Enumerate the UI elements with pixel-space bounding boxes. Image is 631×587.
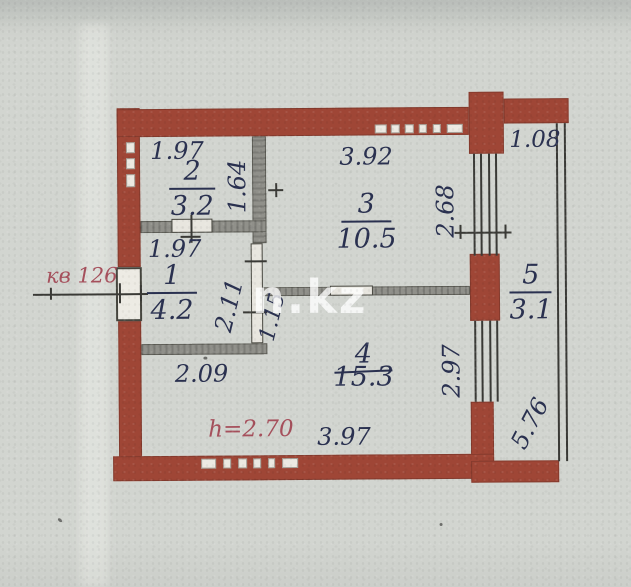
wall-hatch <box>253 458 261 468</box>
dim-balcony-length: 5.76 <box>507 394 553 452</box>
room3-window-line <box>488 154 491 256</box>
dimension-tick <box>50 288 52 300</box>
floor-plan-scan: 2 3.2 3 10.5 1 4.2 4 15.3 5 3.1 1.97 3.9… <box>0 0 631 587</box>
wall-hatch <box>375 124 387 133</box>
dim-room1-depth: 2.11 <box>211 277 247 335</box>
dimension-tick <box>245 260 267 262</box>
dimension-tick <box>268 189 283 191</box>
room1-label: 1 4.2 <box>147 262 197 324</box>
wall-hatch <box>391 124 400 133</box>
dim-room3-window: 2.68 <box>433 184 457 238</box>
room3-window-line <box>480 154 483 256</box>
dim-top-center-width: 3.92 <box>339 144 393 168</box>
wall-hatch <box>201 459 216 469</box>
room2-label: 2 3.2 <box>169 158 215 220</box>
room4-window-line <box>489 321 492 402</box>
dim-hall-width: 2.09 <box>175 362 229 386</box>
room5-number: 5 <box>509 261 552 288</box>
scan-speck <box>440 523 443 526</box>
room4-window-line <box>496 321 499 402</box>
room1-number: 1 <box>147 262 197 289</box>
room3-number: 3 <box>336 190 396 217</box>
room1-area: 4.2 <box>147 297 197 324</box>
interior-wall-room1-bottom <box>141 343 267 355</box>
wall-hatch <box>282 458 298 468</box>
room3-label: 3 10.5 <box>336 190 397 252</box>
room4-area: 15.3 <box>333 363 393 390</box>
dim-room1-width: 1.97 <box>148 237 202 261</box>
wall-hatch <box>126 174 135 187</box>
fraction-bar <box>169 188 215 190</box>
wall-hatch <box>447 124 463 133</box>
ceiling-height-label: h=2.70 <box>208 416 293 443</box>
outer-wall-pillar-top-right <box>469 92 504 154</box>
dimension-tick <box>459 225 461 239</box>
room4-label: 4 15.3 <box>333 340 393 390</box>
room5-label: 5 3.1 <box>509 261 552 323</box>
dim-room4-window: 2.97 <box>439 344 463 398</box>
room5-area: 3.1 <box>510 296 553 323</box>
room3-area: 10.5 <box>336 225 396 252</box>
room4-window-line <box>474 321 477 402</box>
wall-hatch <box>268 458 275 468</box>
watermark: n.kz <box>252 274 368 320</box>
outer-wall-bottom <box>113 454 494 482</box>
outer-wall-top <box>117 107 469 137</box>
dimension-tick <box>140 285 142 301</box>
wall-hatch <box>433 124 441 133</box>
balcony-glazing-line <box>564 123 568 461</box>
dimension-tick <box>504 225 506 239</box>
outer-wall-right-mid <box>470 254 500 321</box>
dimension-line <box>455 232 512 234</box>
room2-area: 3.2 <box>169 193 215 220</box>
wall-hatch <box>126 158 135 169</box>
balcony-wall-bottom <box>471 460 559 483</box>
fraction-bar <box>341 220 391 222</box>
wall-hatch <box>126 142 135 153</box>
balcony-glazing-line <box>556 123 560 461</box>
apartment-number-label: кв 126 <box>46 263 118 287</box>
scan-speck <box>203 357 207 360</box>
wall-hatch <box>238 458 247 468</box>
scan-speck <box>57 517 63 522</box>
room3-window-line <box>473 154 476 256</box>
dimension-tick <box>119 283 121 303</box>
fraction-bar <box>510 291 552 293</box>
dim-room2-depth: 1.64 <box>225 160 249 214</box>
room3-window-line <box>495 154 498 256</box>
wall-hatch <box>223 458 231 468</box>
room4-window-line <box>481 321 484 402</box>
dim-room4-width: 3.97 <box>317 425 371 449</box>
wall-hatch <box>419 124 427 133</box>
wall-hatch <box>405 124 414 133</box>
balcony-wall-top <box>504 98 569 123</box>
outer-wall-left-lower <box>118 321 142 478</box>
dim-balcony-width: 1.08 <box>509 129 560 152</box>
fraction-bar <box>147 292 197 294</box>
dim-top-left-width: 1.97 <box>150 139 204 163</box>
